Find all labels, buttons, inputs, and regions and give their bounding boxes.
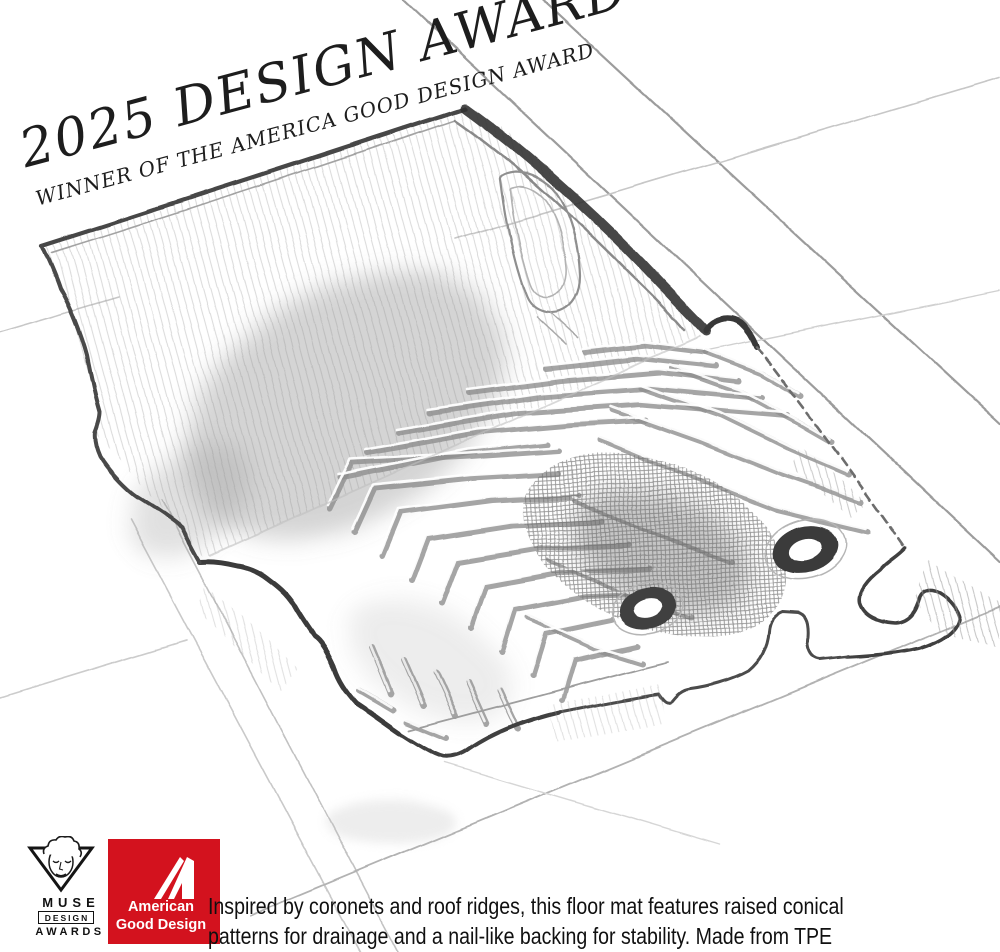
ridge-line	[408, 722, 447, 738]
product-description: Inspired by coronets and roof ridges, th…	[208, 891, 939, 951]
description-line: Inspired by coronets and roof ridges, th…	[208, 891, 939, 921]
description-line: patterns for drainage and a nail-like ba…	[208, 921, 939, 951]
muse-logo-design: DESIGN	[38, 911, 94, 924]
american-good-design-logo: American Good Design	[108, 839, 220, 944]
product-image: 2025 DESIGN AWARD WINNER OF THE AMERICA …	[0, 0, 1000, 952]
muse-triangle-face-icon	[24, 836, 108, 894]
muse-logo-awards: AWARDS	[24, 926, 112, 938]
muse-design-awards-logo: MUSE DESIGN AWARDS	[24, 836, 108, 950]
agd-logo-line2: Good Design	[108, 917, 214, 933]
muse-logo-name: MUSE	[24, 895, 113, 910]
agd-logo-line1: American	[108, 899, 214, 915]
